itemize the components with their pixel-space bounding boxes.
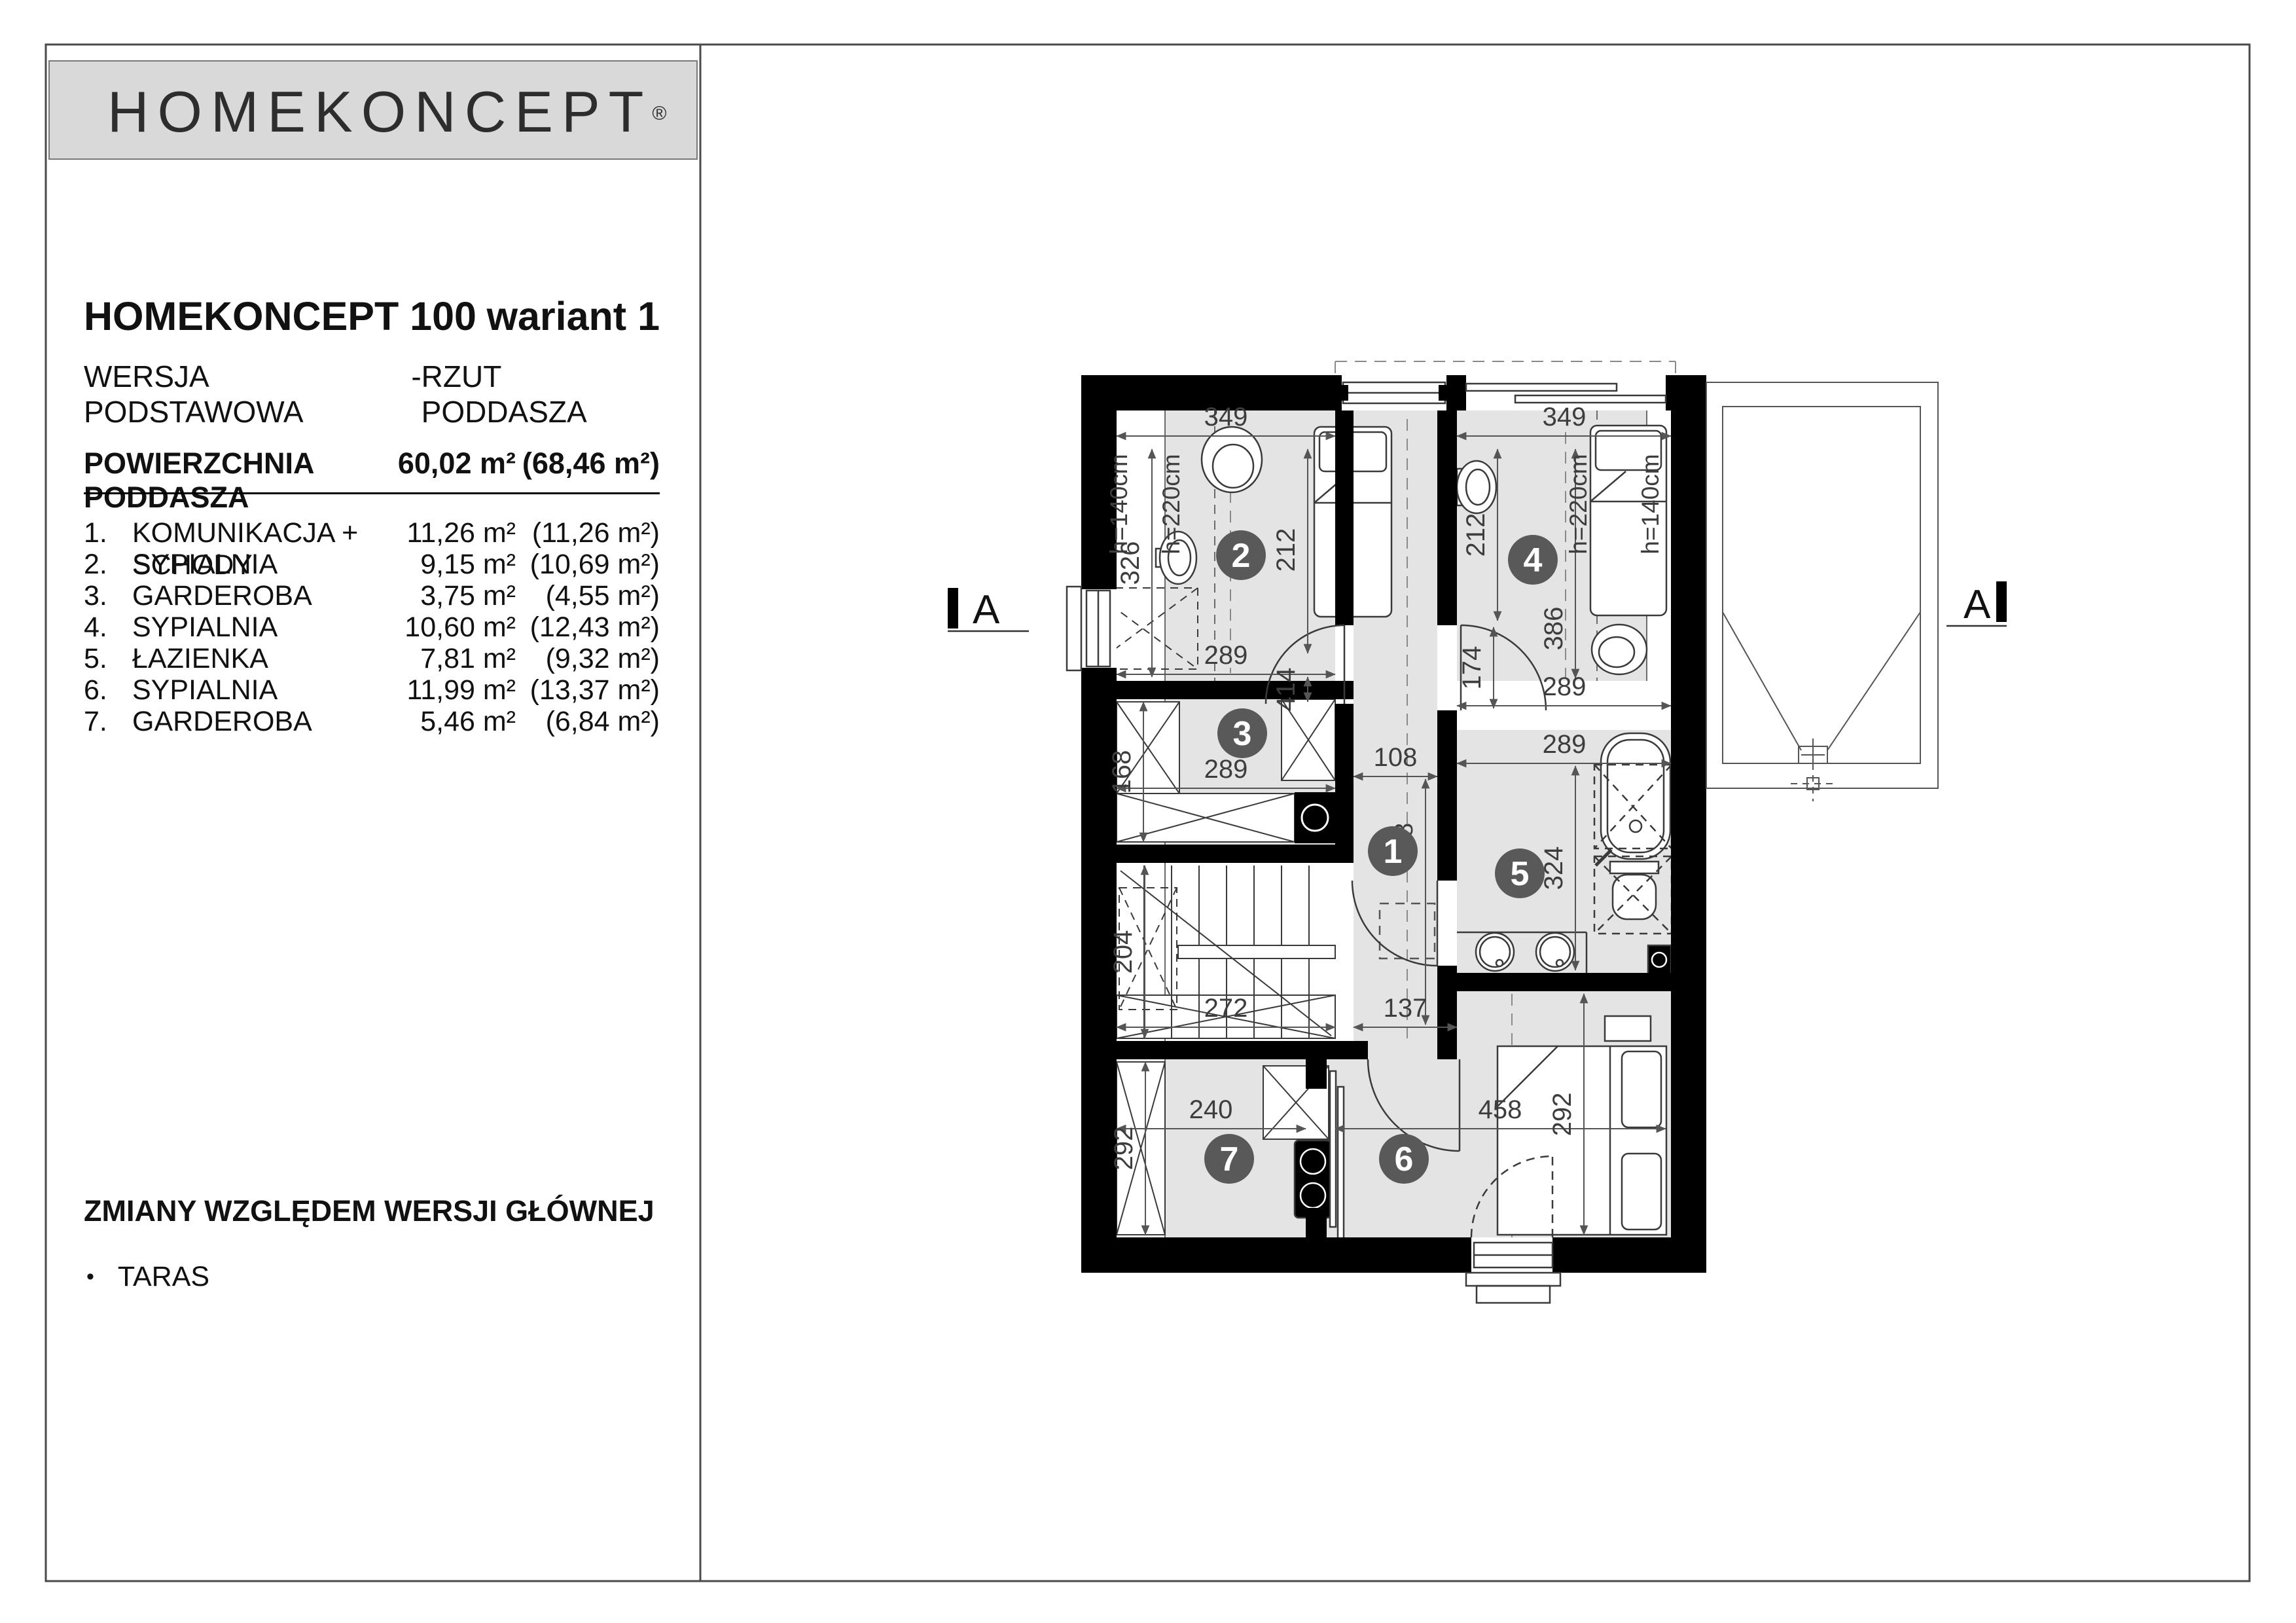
section-label: A	[973, 587, 1000, 632]
water-heater	[1648, 945, 1671, 974]
dim-label: 414	[1272, 668, 1300, 712]
dim-label: 212	[1462, 513, 1490, 557]
table-row: 7. GARDEROBA 5,46 m² (6,84 m²)	[84, 706, 660, 737]
row-label: SYPIALNIA	[132, 549, 395, 581]
variant-label: wariant 1	[487, 293, 660, 339]
room-number: 7	[1220, 1140, 1239, 1178]
row-no: 6.	[84, 674, 132, 706]
row-area: 9,15 m²	[395, 549, 516, 581]
dim-label: 289	[1543, 672, 1587, 701]
row-area-total: (4,55 m²)	[516, 580, 660, 612]
window-left	[1067, 587, 1117, 670]
row-area-total: (11,26 m²)	[516, 517, 660, 549]
project-title: HOMEKONCEPT 100	[84, 293, 476, 339]
row-area: 10,60 m²	[395, 611, 516, 644]
room-number: 3	[1233, 715, 1252, 753]
wall-exterior-right	[1671, 375, 1706, 1273]
row-no: 4.	[84, 611, 132, 644]
bathtub	[1596, 733, 1670, 866]
dim-label: 458	[1479, 1095, 1522, 1124]
desk-chair	[1592, 625, 1647, 674]
view-label: RZUT PODDASZA	[422, 359, 660, 429]
row-label: ŁAZIENKA	[132, 643, 395, 675]
room-badge-7: 7	[1204, 1134, 1254, 1184]
row-area: 5,46 m²	[395, 706, 516, 738]
floorplan-drawing: 349 349 289 289 272 108 137 289 289 240 …	[0, 0, 2296, 1623]
dim-label: 108	[1374, 743, 1418, 772]
height-label: h=140cm	[1637, 454, 1664, 554]
dim-label: 289	[1204, 755, 1248, 784]
dim-label: 212	[1272, 528, 1300, 572]
room-number: 1	[1384, 833, 1403, 871]
section-marker-left: A	[948, 587, 1029, 632]
height-label: h=220cm	[1565, 454, 1592, 554]
room-number: 2	[1232, 537, 1251, 575]
table-row: 6. SYPIALNIA 11,99 m² (13,37 m²)	[84, 674, 660, 706]
room-badge-1: 1	[1368, 826, 1418, 876]
height-label: h=140cm	[1105, 454, 1132, 554]
row-area: 11,99 m²	[395, 674, 516, 706]
row-label: GARDEROBA	[132, 580, 395, 612]
row-label: SYPIALNIA	[132, 611, 395, 644]
table-header-label: POWIERZCHNIA PODDASZA	[84, 447, 395, 515]
dim-label: 168	[1107, 750, 1136, 794]
dim-label: 137	[1384, 994, 1427, 1023]
room6-furniture	[1498, 1016, 1666, 1235]
row-area-total: (13,37 m²)	[516, 674, 660, 706]
table-header-area-total: (68,46 m²)	[516, 447, 660, 515]
area-table-rows: 1. KOMUNIKACJA + SCHODY 11,26 m² (11,26 …	[84, 517, 660, 737]
subtitle-row: WERSJA PODSTAWOWA - RZUT PODDASZA	[84, 359, 660, 429]
room-number: 4	[1524, 541, 1543, 579]
changes-item: • TARAS	[86, 1261, 209, 1293]
washbasin	[1457, 461, 1496, 513]
double-bed	[1498, 1046, 1666, 1235]
row-label: SYPIALNIA	[132, 674, 395, 706]
toilet	[1610, 862, 1659, 919]
window-room6-bottom	[1466, 1237, 1560, 1303]
dim-label: 272	[1204, 994, 1248, 1023]
heater-block	[1295, 792, 1335, 843]
dim-label: 174	[1458, 646, 1486, 690]
logo-box: HOMEKONCEPT®	[48, 60, 698, 160]
row-area-total: (12,43 m²)	[516, 611, 660, 644]
dim-label: 349	[1204, 403, 1248, 431]
logo: HOMEKONCEPT®	[107, 79, 667, 145]
washer-dryer	[1295, 1140, 1331, 1218]
plan-sheet: 349 349 289 289 272 108 137 289 289 240 …	[0, 0, 2296, 1623]
version-label: WERSJA PODSTAWOWA	[84, 359, 411, 429]
dim-label: 204	[1109, 930, 1138, 974]
row-area: 7,81 m²	[395, 643, 516, 675]
room-number: 5	[1511, 855, 1530, 893]
table-row: 5. ŁAZIENKA 7,81 m² (9,32 m²)	[84, 643, 660, 674]
row-area: 3,75 m²	[395, 580, 516, 612]
dim-label: 240	[1189, 1095, 1233, 1124]
dim-label: 349	[1543, 403, 1587, 431]
dim-label: 292	[1548, 1093, 1577, 1137]
room-badge-4: 4	[1508, 535, 1558, 585]
terrace	[1706, 382, 1938, 801]
nightstand	[1605, 1016, 1651, 1041]
room-badge-2: 2	[1216, 530, 1266, 580]
table-row: 3. GARDEROBA 3,75 m² (4,55 m²)	[84, 580, 660, 611]
section-marker-right: A	[1946, 581, 2007, 627]
row-area: 11,26 m²	[395, 517, 516, 549]
wall-exterior-bottom	[1081, 1237, 1706, 1273]
title-row: HOMEKONCEPT 100 wariant 1	[84, 293, 660, 339]
table-rule	[84, 492, 660, 494]
dim-label: 289	[1543, 730, 1587, 759]
registered-mark-icon: ®	[652, 103, 666, 124]
row-area-total: (10,69 m²)	[516, 549, 660, 581]
row-area-total: (6,84 m²)	[516, 706, 660, 738]
change-label: TARAS	[118, 1261, 209, 1293]
dim-label: 292	[1109, 1127, 1138, 1171]
table-row: 1. KOMUNIKACJA + SCHODY 11,26 m² (11,26 …	[84, 517, 660, 549]
row-no: 7.	[84, 706, 132, 738]
height-label: h=220cm	[1158, 454, 1185, 554]
window-corridor-top	[1339, 375, 1448, 410]
row-area-total: (9,32 m²)	[516, 643, 660, 675]
sliding-mirror	[1330, 1071, 1336, 1227]
row-no: 3.	[84, 580, 132, 612]
separator-dash: -	[411, 359, 421, 429]
row-no: 1.	[84, 517, 132, 549]
room-number: 6	[1395, 1140, 1414, 1178]
row-no: 2.	[84, 549, 132, 581]
changes-heading: ZMIANY WZGLĘDEM WERSJI GŁÓWNEJ	[84, 1194, 655, 1228]
room-badge-5: 5	[1495, 848, 1545, 898]
table-row: 2. SYPIALNIA 9,15 m² (10,69 m²)	[84, 549, 660, 580]
table-header-area: 60,02 m²	[395, 447, 516, 515]
dim-label: 386	[1539, 607, 1568, 651]
row-no: 5.	[84, 643, 132, 675]
logo-text: HOMEKONCEPT	[107, 79, 652, 144]
row-label: GARDEROBA	[132, 706, 395, 738]
table-row: 4. SYPIALNIA 10,60 m² (12,43 m²)	[84, 611, 660, 643]
room-badge-3: 3	[1217, 708, 1267, 758]
bullet-icon: •	[86, 1264, 94, 1290]
dim-label: 289	[1204, 641, 1248, 670]
area-table-header: POWIERZCHNIA PODDASZA 60,02 m² (68,46 m²…	[84, 447, 660, 515]
room-badge-6: 6	[1379, 1134, 1429, 1184]
section-label: A	[1964, 582, 1991, 627]
